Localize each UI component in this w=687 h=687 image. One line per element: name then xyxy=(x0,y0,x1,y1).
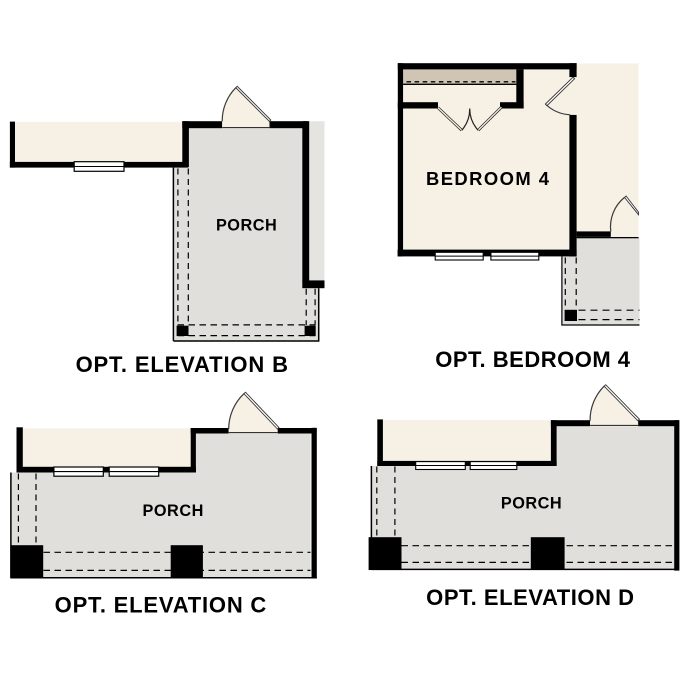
svg-text:OPT. ELEVATION B: OPT. ELEVATION B xyxy=(76,352,289,377)
svg-text:PORCH: PORCH xyxy=(143,502,204,520)
svg-text:PORCH: PORCH xyxy=(216,217,277,235)
svg-text:BEDROOM 4: BEDROOM 4 xyxy=(426,168,550,189)
svg-text:OPT. ELEVATION D: OPT. ELEVATION D xyxy=(426,585,634,610)
svg-text:PORCH: PORCH xyxy=(501,495,562,513)
svg-text:OPT. BEDROOM 4: OPT. BEDROOM 4 xyxy=(435,347,631,372)
svg-text:OPT. ELEVATION C: OPT. ELEVATION C xyxy=(55,592,267,617)
